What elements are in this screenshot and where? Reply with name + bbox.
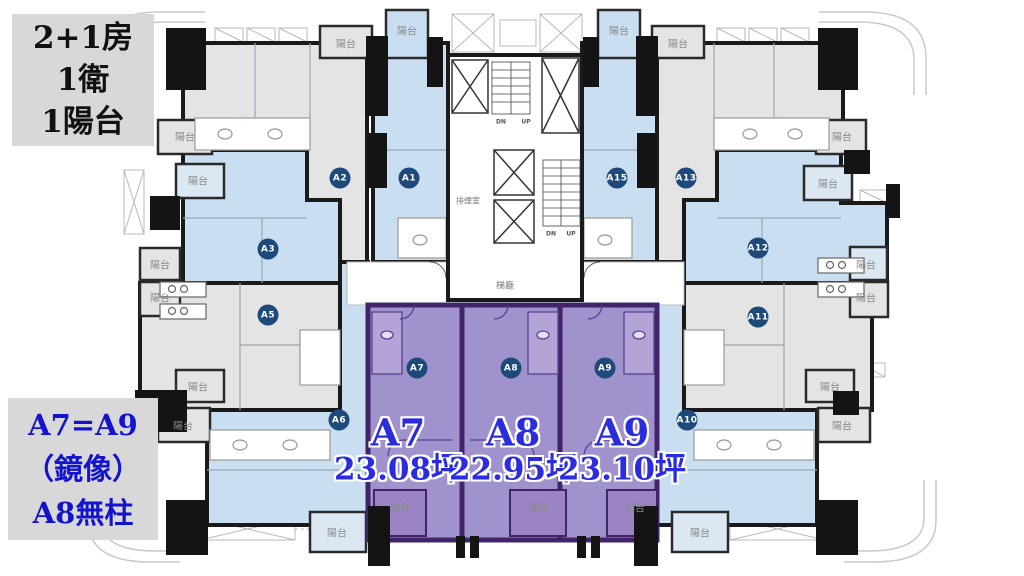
floorplan-page: 2+1房 1衛 1陽台 A7=A9 （鏡像） A8無柱 A2A1A15A13A3… — [0, 0, 1024, 576]
floorplan-drawing — [0, 0, 1024, 576]
core-area — [448, 55, 582, 300]
highlighted-units — [368, 305, 657, 540]
